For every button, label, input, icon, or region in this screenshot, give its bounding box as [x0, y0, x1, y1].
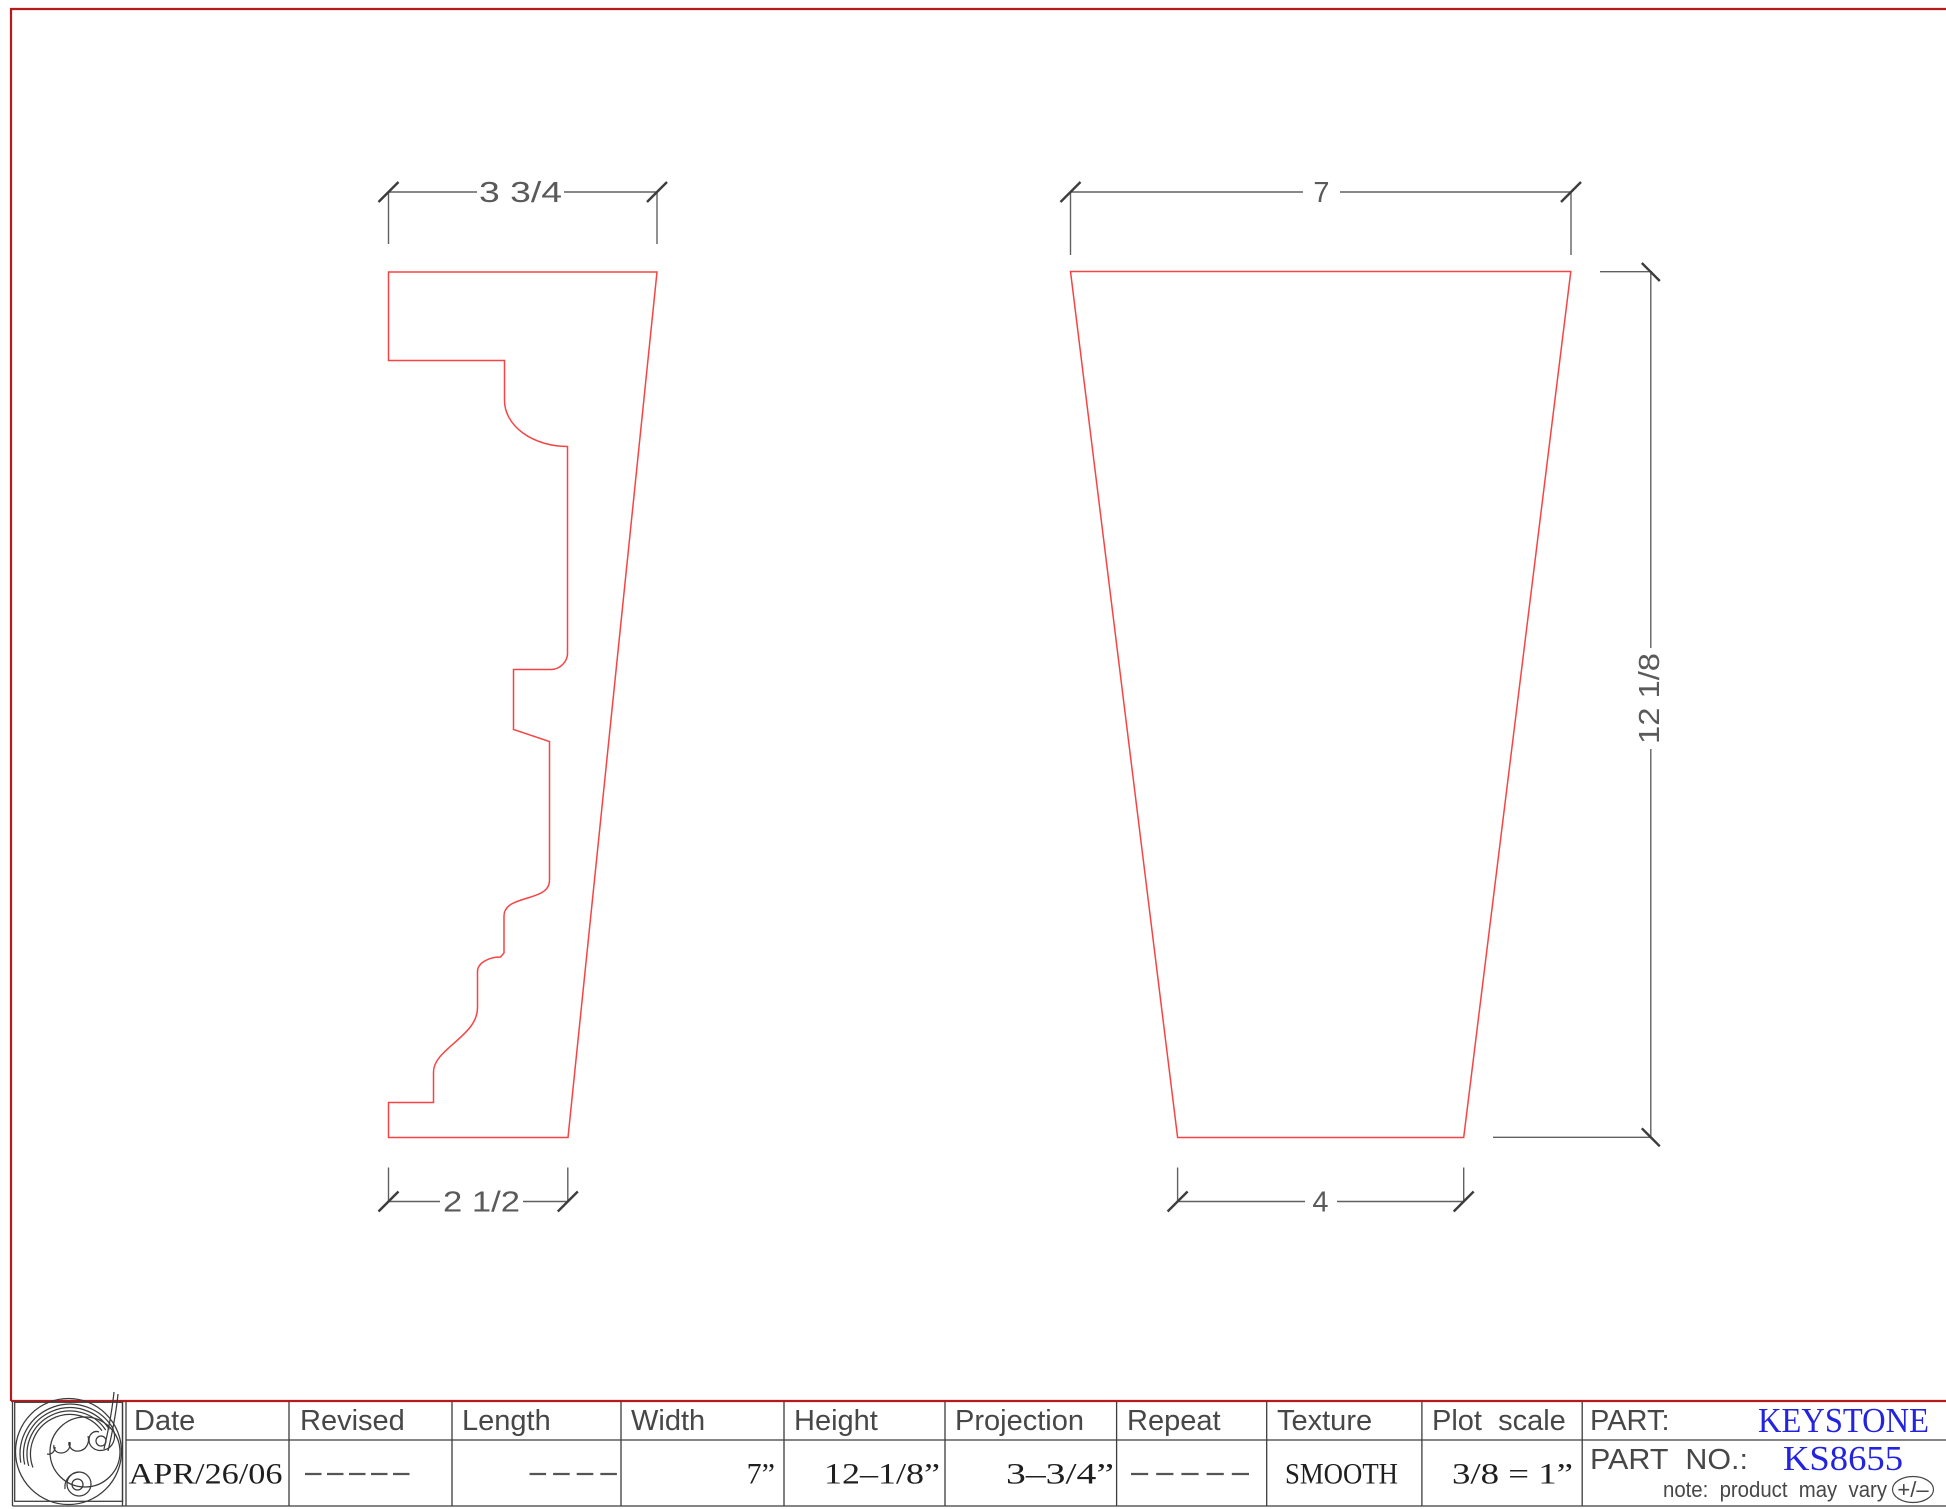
svg-text:3 3/4: 3 3/4 [479, 177, 562, 209]
svg-text:Projection: Projection [955, 1405, 1084, 1437]
svg-text:PART NO.:: PART NO.: [1590, 1444, 1748, 1476]
svg-text:KS8655: KS8655 [1783, 1439, 1903, 1478]
svg-text:Plot scale: Plot scale [1432, 1405, 1566, 1437]
svg-text:SMOOTH: SMOOTH [1285, 1458, 1398, 1491]
svg-text:Revised: Revised [300, 1405, 405, 1437]
svg-text:7”: 7” [747, 1458, 775, 1491]
svg-text:12–1/8”: 12–1/8” [824, 1458, 940, 1491]
svg-text:7: 7 [1313, 177, 1329, 209]
svg-text:4: 4 [1312, 1187, 1328, 1219]
svg-text:Height: Height [794, 1405, 878, 1437]
svg-text:12 1/8: 12 1/8 [1634, 653, 1666, 744]
svg-text:Width: Width [631, 1405, 705, 1437]
svg-text:3/8 = 1”: 3/8 = 1” [1452, 1458, 1573, 1491]
svg-text:+/–: +/– [1897, 1477, 1929, 1502]
svg-text:2 1/2: 2 1/2 [443, 1187, 520, 1219]
svg-text:3–3/4”: 3–3/4” [1006, 1458, 1114, 1491]
svg-text:Date: Date [134, 1405, 195, 1437]
svg-text:Length: Length [462, 1405, 551, 1437]
svg-text:APR/26/06: APR/26/06 [129, 1458, 283, 1491]
svg-text:KEYSTONE: KEYSTONE [1758, 1401, 1929, 1440]
svg-text:Repeat: Repeat [1127, 1405, 1221, 1437]
svg-text:Texture: Texture [1277, 1405, 1372, 1437]
svg-text:note: product may vary: note: product may vary [1663, 1477, 1887, 1502]
svg-text:PART:: PART: [1590, 1405, 1670, 1437]
